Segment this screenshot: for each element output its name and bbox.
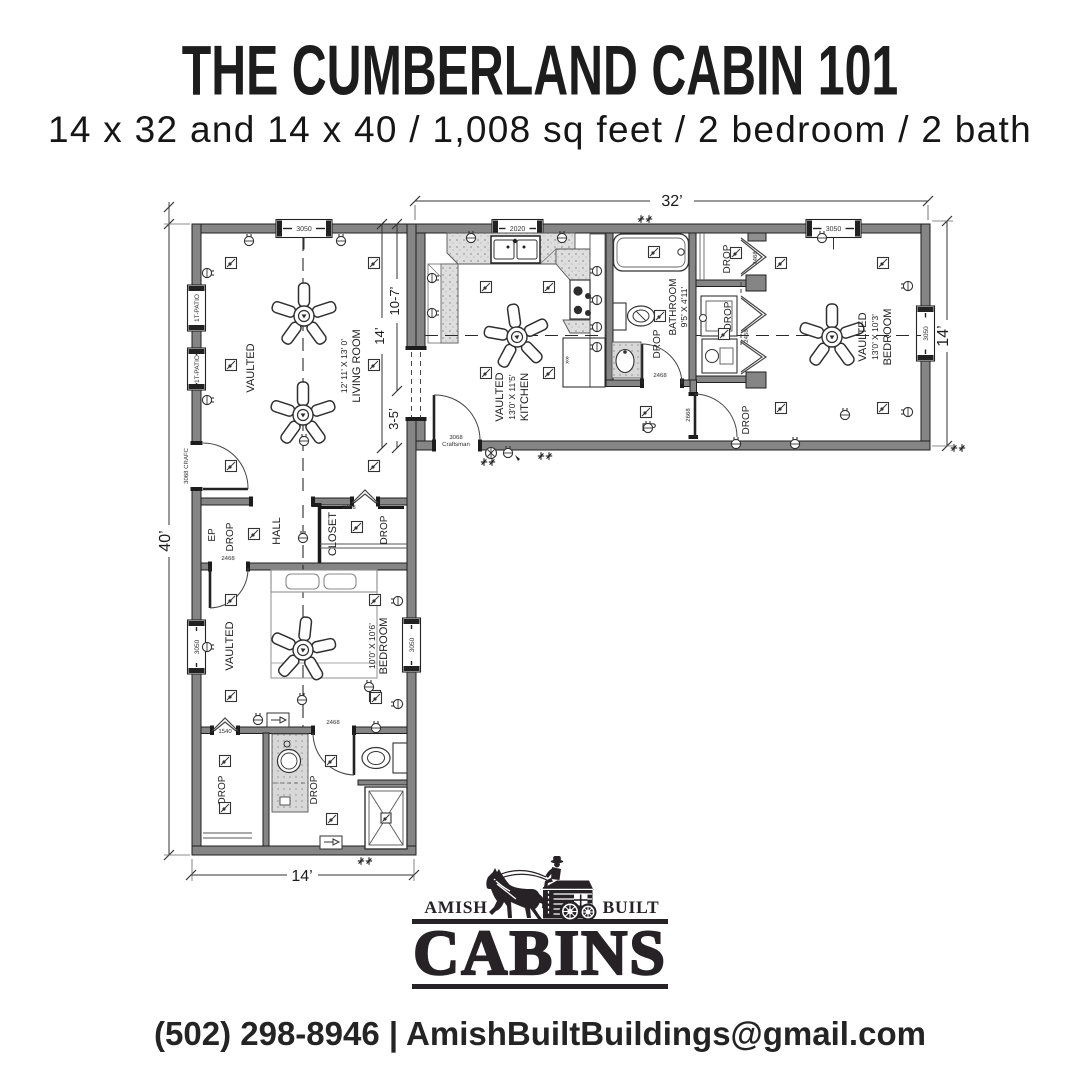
svg-text:BUILT: BUILT [603, 897, 660, 917]
svg-text:CABINS: CABINS [413, 917, 667, 988]
svg-text:AMISH: AMISH [424, 897, 487, 917]
